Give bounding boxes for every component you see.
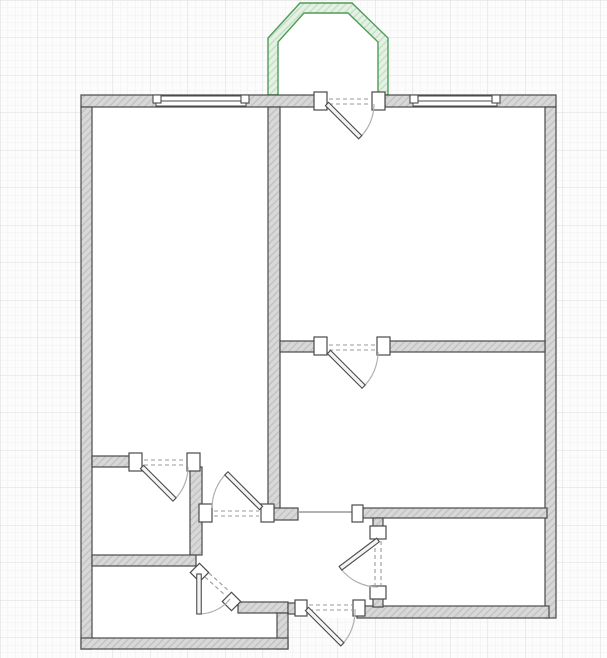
- wall-right: [545, 107, 556, 618]
- window-left: [153, 95, 249, 106]
- window-left-jamb-left: [153, 95, 161, 103]
- wall-center-vertical: [268, 107, 280, 509]
- hall-door-jamb-left: [199, 504, 212, 522]
- bath-door-jamb-top: [370, 526, 386, 539]
- divider-door-jamb-right: [377, 337, 390, 355]
- entry-door-jamb-left: [295, 600, 307, 616]
- wall-bottom-left: [81, 638, 288, 649]
- passage-jamb: [352, 505, 363, 522]
- wall-left: [81, 107, 92, 649]
- floor-plan-canvas: [0, 0, 607, 658]
- balcony-door-jamb-left: [314, 92, 327, 110]
- divider-door-jamb-left: [314, 337, 327, 355]
- window-left-jamb-right: [241, 95, 249, 103]
- wall-bath-top: [357, 508, 547, 518]
- window-right-jamb-right: [492, 95, 500, 103]
- storage-door-jamb-right: [187, 453, 200, 471]
- wall-storage-bottom: [92, 555, 196, 566]
- wall-divider-left: [280, 341, 316, 352]
- wall-kitchen-top-right: [238, 602, 288, 613]
- window-right: [410, 95, 500, 106]
- wall-divider-right: [389, 341, 545, 352]
- bath-door-jamb-bottom: [370, 586, 386, 599]
- wall-bottom-right: [357, 606, 549, 618]
- wall-storage-top: [92, 456, 131, 467]
- window-right-jamb-left: [410, 95, 418, 103]
- kitchen-door-leaf: [197, 574, 202, 614]
- floor-plan: [0, 0, 607, 658]
